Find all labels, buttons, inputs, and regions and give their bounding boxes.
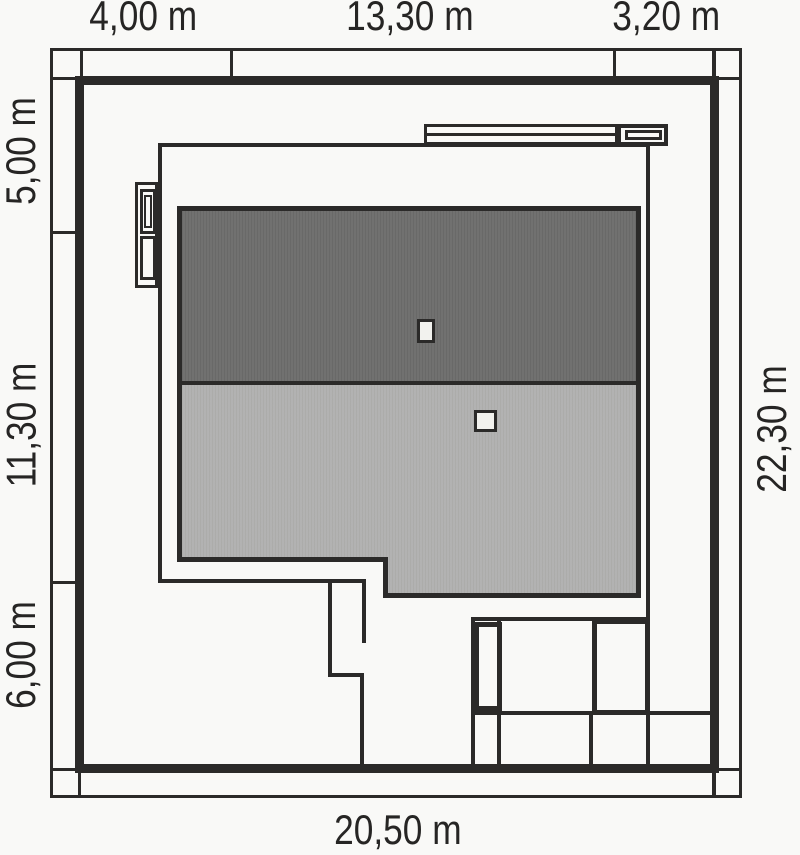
dim-tick-left-2: [53, 581, 75, 584]
chimney-2: [474, 410, 497, 432]
dim-tick-left-corner-bottom: [53, 768, 75, 771]
dim-tick-bottom-corner-left: [78, 773, 81, 795]
house-wall-left: [158, 143, 162, 583]
fence-bottom: [75, 764, 719, 773]
dim-tick-left-1: [53, 231, 75, 234]
fence-gate-sliding-rail: [427, 133, 615, 136]
dim-tick-right-corner-bottom: [719, 768, 739, 771]
terrace-pillar-2: [592, 619, 650, 715]
house-wall-stub: [362, 583, 366, 643]
roof-light-section-right: [383, 385, 641, 598]
terrace-pillar-1: [474, 622, 502, 711]
dim-tick-left-corner-top: [53, 77, 75, 80]
plot-boundary-bottom: [50, 795, 742, 798]
driveway-edge-right: [360, 673, 364, 765]
site-plan: 4,00 m 13,30 m 3,20 m 5,00 m 11,30 m 6,0…: [0, 0, 800, 855]
fence-gate-wicket-bar: [625, 130, 662, 140]
terrace-edge-bottom: [471, 711, 710, 715]
dim-tick-top-corner-right: [712, 51, 716, 76]
driveway-edge-left: [328, 583, 332, 677]
dimension-label-bottom: 20,50 m: [298, 806, 498, 854]
dim-tick-bottom-corner-right: [712, 773, 716, 795]
dim-tick-right-corner-top: [719, 77, 739, 80]
roof-light-section-left: [177, 385, 383, 562]
dim-tick-top-1: [230, 51, 233, 76]
path-edge-3: [589, 711, 593, 765]
dimension-label-top-middle: 13,30 m: [310, 0, 510, 38]
plot-boundary-top: [50, 48, 742, 51]
roof-dark-section: [177, 206, 641, 385]
house-wall-bottom: [158, 579, 366, 583]
fence-left: [75, 76, 84, 773]
driveway-edge-step: [328, 673, 364, 677]
entrance-detail-upper-inner: [144, 195, 152, 228]
plot-boundary-right: [739, 48, 742, 798]
chimney-1: [417, 319, 435, 343]
dim-tick-top-2: [613, 51, 616, 76]
dimension-label-top-right: 3,20 m: [566, 0, 766, 38]
entrance-detail-lower: [140, 236, 156, 280]
dim-tick-top-corner-left: [80, 51, 83, 76]
fence-top: [75, 76, 719, 85]
fence-right: [710, 76, 719, 773]
roof-step-edge: [383, 557, 388, 598]
dimension-label-top-left: 4,00 m: [43, 0, 243, 38]
plot-boundary-left: [50, 48, 53, 798]
